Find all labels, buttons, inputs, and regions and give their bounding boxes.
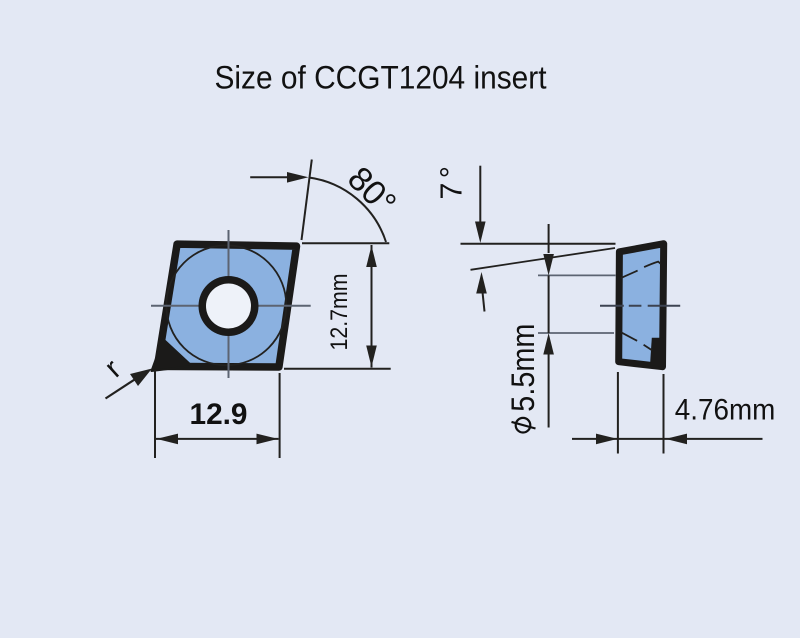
svg-text:4.76mm: 4.76mm	[675, 393, 776, 426]
svg-text:12.9: 12.9	[190, 398, 248, 431]
svg-text:12.7mm: 12.7mm	[326, 274, 353, 351]
svg-text:5.5mm: 5.5mm	[505, 324, 541, 412]
svg-text:Size of CCGT1204 insert: Size of CCGT1204 insert	[215, 59, 547, 95]
svg-text:7°: 7°	[435, 166, 469, 200]
